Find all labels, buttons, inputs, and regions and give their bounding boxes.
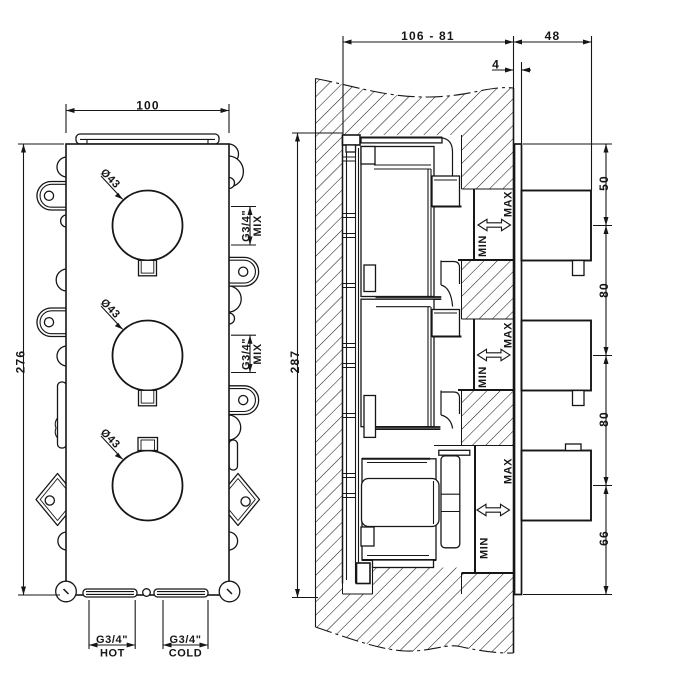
svg-text:MIN: MIN [479,537,491,559]
svg-text:MIX: MIX [252,215,264,236]
svg-text:G3/4": G3/4" [241,338,253,370]
svg-text:287: 287 [288,350,302,374]
svg-text:MAX: MAX [503,322,515,348]
svg-text:80: 80 [597,282,611,298]
svg-text:106 - 81: 106 - 81 [401,29,455,43]
svg-text:50: 50 [597,175,611,191]
svg-text:HOT: HOT [100,648,125,660]
svg-text:66: 66 [597,530,611,546]
svg-text:MIX: MIX [252,343,264,364]
svg-text:MAX: MAX [503,191,515,217]
svg-text:100: 100 [136,99,160,113]
svg-text:MIN: MIN [477,366,489,388]
svg-text:276: 276 [14,350,28,374]
svg-text:48: 48 [545,29,561,43]
svg-text:G3/4": G3/4" [241,210,253,242]
svg-text:80: 80 [597,411,611,427]
svg-text:COLD: COLD [169,648,203,660]
svg-text:MAX: MAX [503,458,515,484]
svg-text:MIN: MIN [477,235,489,257]
svg-text:G3/4": G3/4" [169,634,201,646]
svg-text:4: 4 [492,58,500,72]
svg-text:G3/4": G3/4" [96,634,128,646]
